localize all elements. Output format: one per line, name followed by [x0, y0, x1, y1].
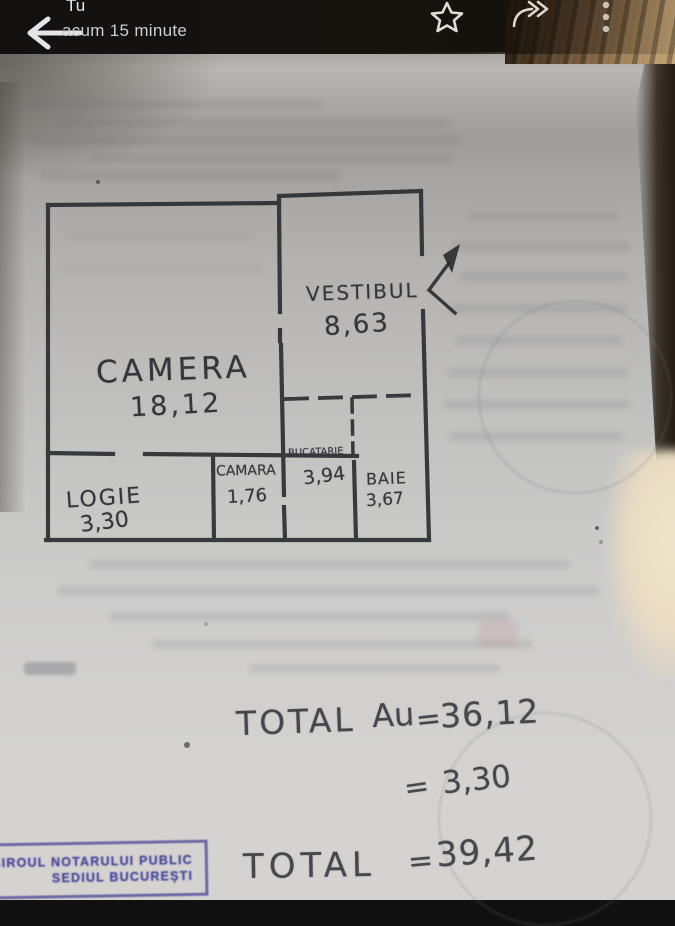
- logie-total-eq: =: [402, 768, 432, 806]
- room-label-baie: BAIE: [366, 468, 407, 488]
- room-label-camara: CAMARA: [216, 462, 276, 479]
- notary-stamp: BIROUL NOTARULUI PUBLIC SEDIUL BUCUREȘTI: [0, 840, 208, 901]
- room-label-camera: CAMERA: [95, 349, 251, 390]
- room-label-bucatarie: BUCATARIE: [288, 446, 344, 459]
- total-au-symbol: Au: [371, 695, 415, 735]
- menu-button[interactable]: [596, 0, 616, 36]
- total-au-label: TOTAL: [235, 700, 356, 743]
- forward-share-icon: [508, 0, 552, 30]
- forward-button[interactable]: [508, 0, 552, 30]
- app-bar: Tu acum 15 minute: [0, 0, 675, 54]
- sender-title: Tu: [66, 0, 85, 16]
- total-au-value: 36,12: [439, 691, 540, 735]
- room-area-camara: 1,76: [226, 485, 267, 508]
- logie-total-value: 3,30: [440, 758, 512, 801]
- photo-viewer[interactable]: CAMERA 18,12 VESTIBUL 8,63 LOGIE 3,30 CA…: [0, 52, 675, 900]
- grand-total-value: 39,42: [435, 828, 540, 875]
- room-area-camera: 18,12: [129, 388, 223, 424]
- timestamp-subtitle: acum 15 minute: [62, 21, 187, 41]
- grand-total-label: TOTAL: [243, 845, 377, 887]
- overflow-menu-icon: [596, 0, 616, 36]
- room-label-vestibul: VESTIBUL: [306, 278, 419, 306]
- star-outline-icon: [430, 0, 464, 34]
- star-button[interactable]: [430, 0, 464, 34]
- screenshot-root: { "app_bar": { "title": "Tu", "subtitle"…: [0, 0, 675, 900]
- stamp-line2: SEDIUL BUCUREȘTI: [52, 868, 193, 886]
- room-area-vestibul: 8,63: [323, 308, 391, 343]
- room-area-baie: 3,67: [365, 489, 404, 512]
- grand-total-eq: =: [407, 843, 435, 880]
